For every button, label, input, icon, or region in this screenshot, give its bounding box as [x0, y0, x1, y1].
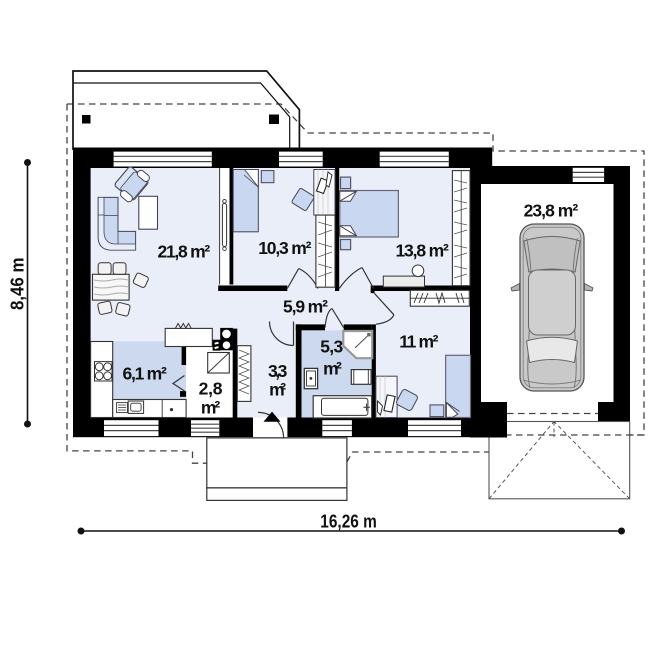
- svg-text:m²: m²: [323, 359, 342, 379]
- svg-text:21,8 m²: 21,8 m²: [158, 242, 211, 262]
- svg-text:5,3: 5,3: [320, 336, 343, 356]
- svg-text:8,46 m: 8,46 m: [7, 258, 28, 311]
- svg-text:2,8: 2,8: [199, 378, 223, 398]
- svg-text:6,1 m²: 6,1 m²: [123, 363, 167, 383]
- svg-text:11 m²: 11 m²: [399, 331, 438, 351]
- svg-text:3,3: 3,3: [268, 361, 288, 381]
- svg-text:13,8 m²: 13,8 m²: [396, 241, 449, 261]
- svg-text:m²: m²: [269, 379, 286, 399]
- svg-text:10,3 m²: 10,3 m²: [258, 238, 311, 258]
- svg-text:m²: m²: [201, 398, 220, 418]
- svg-text:23,8 m²: 23,8 m²: [524, 201, 579, 221]
- svg-text:16,26 m: 16,26 m: [320, 510, 377, 531]
- svg-text:5,9 m²: 5,9 m²: [283, 297, 328, 317]
